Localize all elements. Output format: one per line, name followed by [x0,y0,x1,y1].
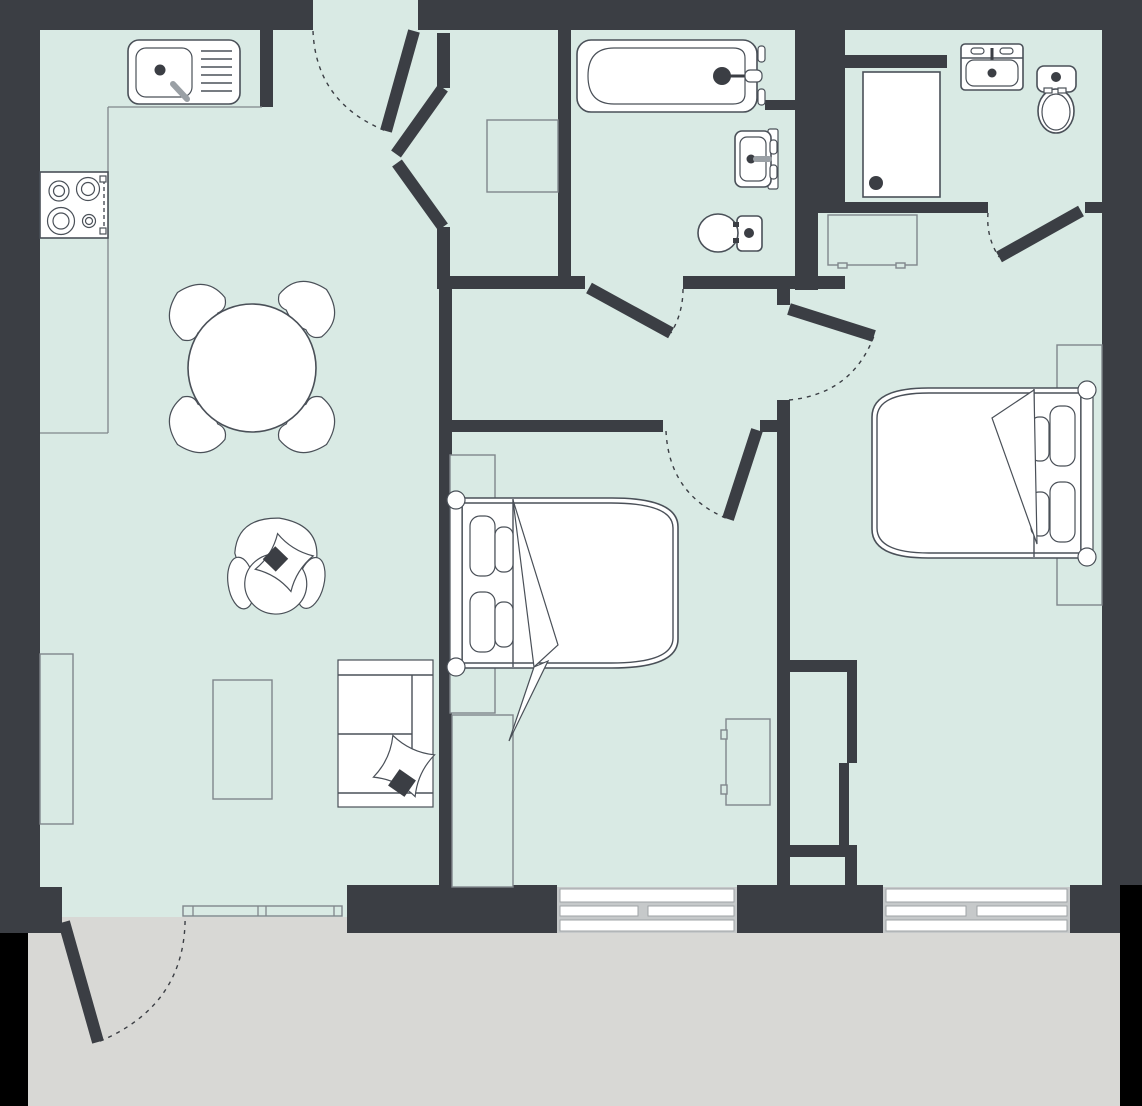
wall-bedroom1-top [439,420,663,432]
bed-2 [872,381,1096,566]
bathtub-spout [745,70,762,82]
bed-post-bottom [1078,548,1096,566]
sink-drain [155,65,166,76]
wall-hall-top-a [437,276,585,289]
vanity-handle-2 [1000,48,1013,54]
cabinet-foot-1 [838,263,847,268]
floor-plan [0,0,1142,1106]
bathtub-handle-1 [758,46,765,62]
bed-post-top [1078,381,1096,399]
toilet-flush-button [744,228,754,238]
wall-vestibule-stub-top [437,33,450,88]
sofa [338,660,435,807]
stove-mark-top [100,176,106,182]
cabinet-body [726,719,770,805]
window-band-outer [886,889,1067,902]
burner-3-inner [53,213,69,229]
entry-threshold [313,0,418,30]
closet-shelf [487,120,558,192]
wall-divider-stub [777,289,790,305]
bathtub [577,40,765,112]
wall-bedrooms-divider [777,400,790,887]
wall-closet-right-lower [839,763,849,845]
toilet-flush-button [1051,72,1061,82]
window-band-mid-left [886,906,966,916]
balcony-floor [28,917,1120,1106]
wall-bathroom-left [558,28,571,288]
wall-shower-top [845,55,947,68]
bed-pillow-2 [470,592,495,652]
bed-pillow-2b [495,602,513,647]
toilet-hinge-2 [733,238,739,243]
burner-1-inner [54,186,65,197]
window-band-inner [560,920,734,931]
stove-mark-bottom [100,228,106,234]
wall-vestibule-stub-bottom [437,227,450,278]
bathtub-drain [713,67,731,85]
stove [40,172,108,238]
bedroom1-window [557,887,737,933]
window-band-outer [560,889,734,902]
cabinet-body [828,215,917,265]
toilet-bowl-inner [1042,94,1070,130]
shower-room-toilet [1037,66,1076,133]
sink-handle-2 [770,165,777,179]
wall-left-step [40,887,62,933]
vanity-sink [961,44,1023,90]
bed-headboard [1081,386,1093,560]
wall-closet-right-upper [847,672,857,763]
vanity-handle-1 [971,48,984,54]
bed-pillow-1 [1050,406,1075,466]
wall-kitchen-stub [260,28,273,107]
window-band-mid-right [977,906,1067,916]
wall-bottom-a [347,885,557,933]
cabinet-hinge-1 [721,730,727,739]
bedroom1-wardrobe [452,715,513,887]
wall-bottom-c [1070,885,1120,933]
wall-bottom-b [737,885,883,933]
bedroom2-window [883,887,1070,933]
window-band-mid-right [648,906,734,916]
hall-cabinet [828,215,917,268]
railing-track [183,906,342,916]
bed-pillow-2 [1050,482,1075,542]
vanity-drain-dot [988,69,997,78]
toilet-hinge-1 [733,222,739,227]
toilet-hinge-1 [1044,88,1052,93]
dining-table [188,304,316,432]
kitchen-sink [128,40,240,104]
wall-top-right [418,0,1142,30]
balcony-railing [183,906,342,916]
wall-top-left [0,0,313,30]
toilet-hinge-2 [1058,88,1066,93]
bathroom-toilet [698,214,762,252]
wall-closet-top [790,660,857,672]
window-band-mid-left [560,906,638,916]
burner-4-inner [86,218,93,225]
bathtub-handle-2 [758,89,765,105]
wall-bedroom1-door-stub [760,420,777,432]
bathroom-sink [735,129,778,189]
tv-stand [213,680,272,799]
wall-tub-stub [765,100,795,110]
cabinet-foot-2 [896,263,905,268]
wall-bathroom-right-thick [795,28,845,213]
wall-shower-room-bottom [845,202,988,213]
burner-2-inner [82,183,95,196]
wall-right [1102,0,1142,885]
cabinet-hinge-2 [721,785,727,794]
shower-drain [869,176,883,190]
bed-headboard [450,496,462,670]
bed-pillow-1 [470,516,495,576]
wall-closet-bottom [790,845,857,857]
window-band-inner [886,920,1067,931]
bed-pillow-1b [495,527,513,572]
bedroom1-cabinet [721,719,770,805]
wall-shower-door-stub [1085,202,1102,213]
wall-left [0,0,40,933]
toilet-bowl [698,214,738,252]
wall-hall-top-b [683,276,845,289]
wall-small-closet-right [845,857,857,887]
wall-bathroom-right-lower [795,213,818,290]
floor-plan-canvas [0,0,1142,1106]
sink-handle-1 [770,140,777,154]
bed-post-bottom [447,658,465,676]
radiator [40,654,73,824]
bed-post-top [447,491,465,509]
